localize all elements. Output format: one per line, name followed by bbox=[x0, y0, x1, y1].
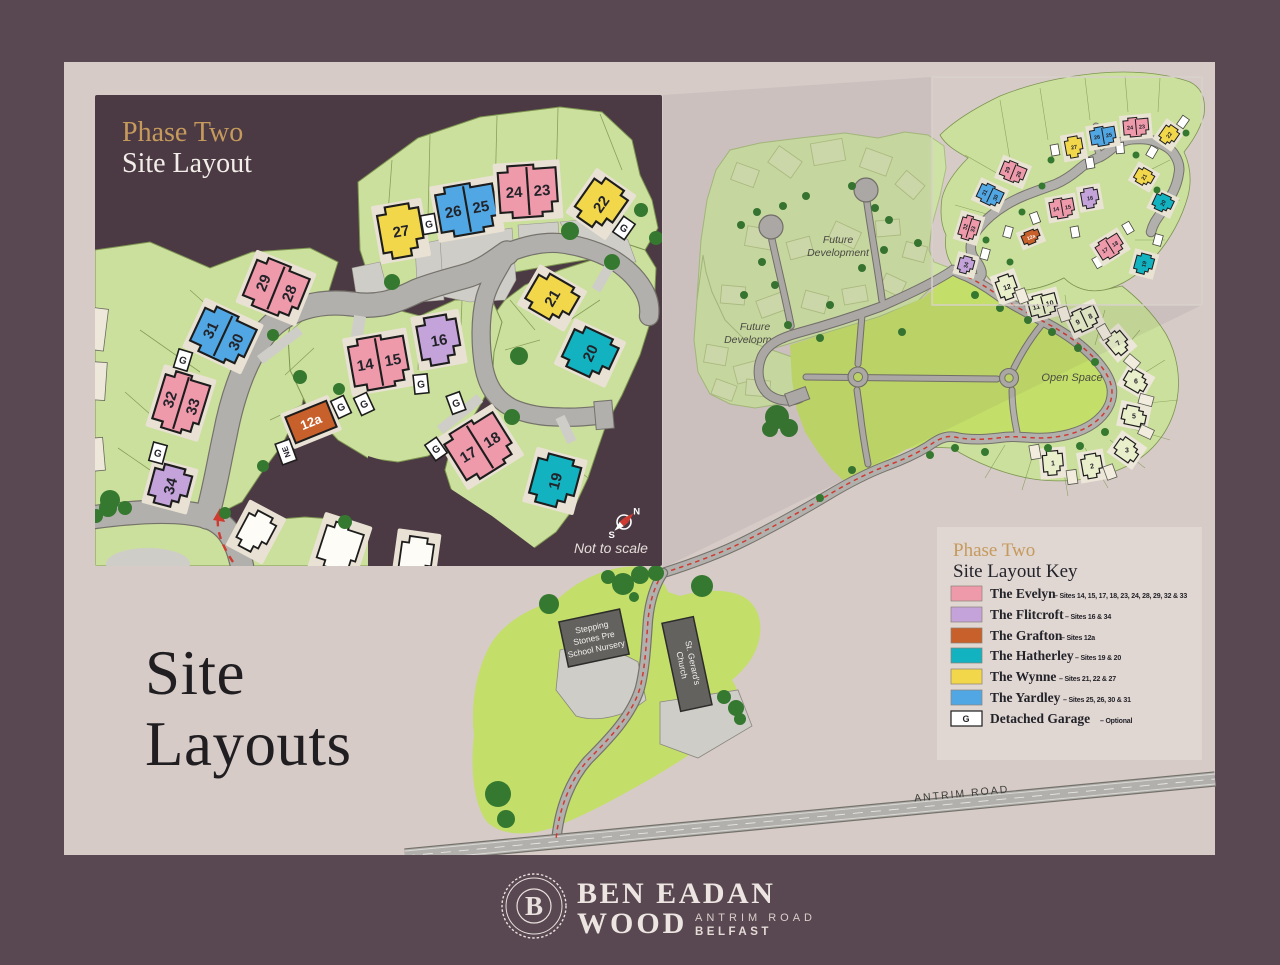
svg-text:G: G bbox=[417, 379, 426, 391]
svg-text:– Sites 25, 26, 30 & 31: – Sites 25, 26, 30 & 31 bbox=[1063, 697, 1131, 704]
svg-text:26: 26 bbox=[1094, 135, 1101, 142]
svg-text:Site: Site bbox=[145, 638, 245, 708]
svg-text:25: 25 bbox=[1106, 132, 1113, 139]
svg-text:G: G bbox=[962, 714, 969, 724]
svg-text:16: 16 bbox=[429, 331, 448, 351]
svg-text:27: 27 bbox=[391, 222, 410, 242]
svg-text:3: 3 bbox=[1125, 448, 1129, 455]
svg-text:5: 5 bbox=[1132, 414, 1136, 421]
svg-text:– Sites 21, 22 & 27: – Sites 21, 22 & 27 bbox=[1059, 676, 1116, 683]
svg-text:Phase Two: Phase Two bbox=[953, 540, 1035, 561]
svg-text:The Yardley: The Yardley bbox=[990, 690, 1061, 705]
svg-text:– Sites 16 & 34: – Sites 16 & 34 bbox=[1065, 614, 1111, 621]
svg-text:Not to scale: Not to scale bbox=[574, 540, 648, 556]
svg-text:The Flitcroft: The Flitcroft bbox=[990, 607, 1064, 622]
svg-text:– Optional: – Optional bbox=[1100, 718, 1132, 725]
svg-text:Phase Two: Phase Two bbox=[122, 117, 243, 148]
svg-text:6: 6 bbox=[1134, 379, 1138, 386]
svg-text:1: 1 bbox=[1051, 460, 1056, 467]
svg-text:BELFAST: BELFAST bbox=[695, 926, 772, 938]
svg-text:Detached Garage: Detached Garage bbox=[990, 711, 1090, 726]
svg-text:– Sites 14, 15, 17, 18, 23, 24: – Sites 14, 15, 17, 18, 23, 24, 28, 29, … bbox=[1054, 593, 1187, 600]
svg-text:16: 16 bbox=[1087, 195, 1094, 202]
svg-text:BEN EADAN: BEN EADAN bbox=[577, 877, 775, 910]
svg-text:26: 26 bbox=[444, 202, 463, 222]
svg-text:24: 24 bbox=[505, 184, 523, 202]
svg-text:23: 23 bbox=[533, 182, 551, 200]
svg-text:Layouts: Layouts bbox=[145, 709, 351, 779]
svg-text:The Grafton: The Grafton bbox=[990, 628, 1063, 643]
svg-text:27: 27 bbox=[1071, 144, 1078, 151]
svg-text:N: N bbox=[633, 507, 640, 518]
svg-text:WOOD: WOOD bbox=[577, 907, 687, 940]
svg-text:– Sites 19 & 20: – Sites 19 & 20 bbox=[1075, 655, 1121, 662]
svg-text:The Wynne: The Wynne bbox=[990, 669, 1056, 684]
svg-text:15: 15 bbox=[1065, 204, 1072, 211]
svg-text:Site Layout Key: Site Layout Key bbox=[953, 561, 1078, 582]
svg-text:The Hatherley: The Hatherley bbox=[990, 648, 1074, 663]
svg-text:ANTRIM ROAD: ANTRIM ROAD bbox=[695, 912, 816, 924]
svg-text:The Evelyn: The Evelyn bbox=[990, 586, 1056, 601]
svg-text:25: 25 bbox=[471, 198, 490, 218]
svg-text:23: 23 bbox=[1139, 124, 1146, 131]
svg-text:Site Layout: Site Layout bbox=[122, 148, 252, 179]
svg-text:B: B bbox=[525, 891, 543, 921]
svg-text:15: 15 bbox=[383, 351, 402, 371]
svg-text:– Sites 12a: – Sites 12a bbox=[1061, 635, 1095, 642]
